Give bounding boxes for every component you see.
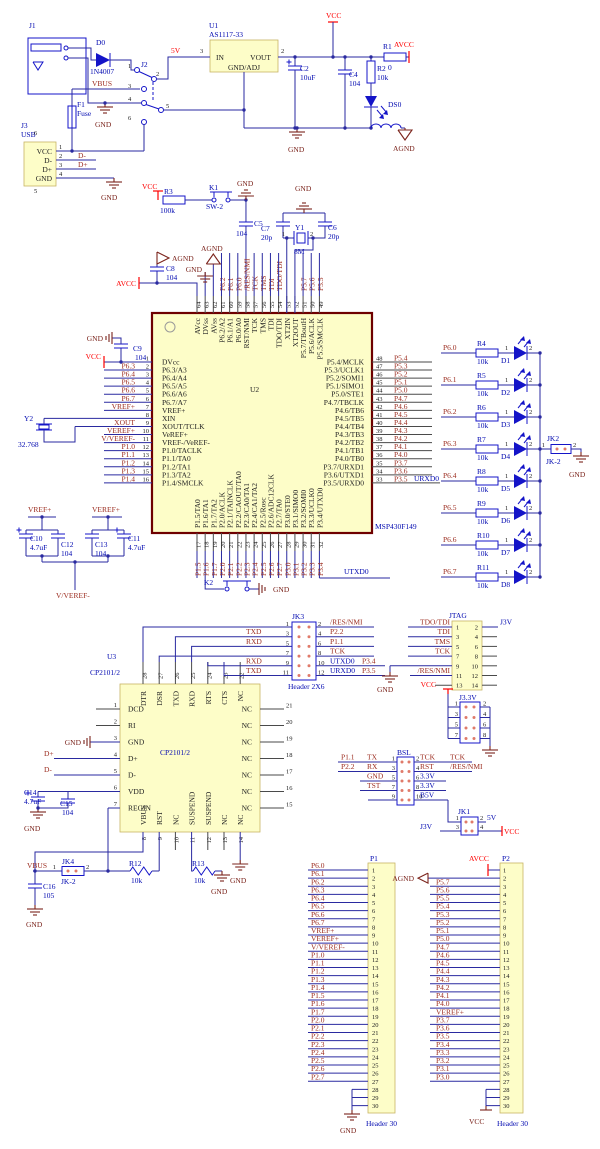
pin-number: 22: [236, 542, 243, 549]
net-label: D+: [42, 165, 52, 174]
net-label: Fuse: [77, 109, 92, 118]
net-label: VEREF+: [92, 505, 120, 514]
net-label: K1: [209, 183, 218, 192]
pin-name: NC: [236, 691, 245, 701]
net-label: C12: [61, 540, 74, 549]
pin-number: 31: [310, 542, 317, 549]
pin-number: 2: [529, 505, 532, 512]
pin-number: 27: [158, 672, 165, 679]
designator: D8: [501, 580, 510, 589]
pin-number: 51: [302, 302, 309, 309]
net-label: C4: [349, 70, 358, 79]
net-label: TMS: [435, 637, 450, 646]
switch-contact: [142, 101, 147, 106]
pin-number: 15: [143, 468, 150, 475]
value: 10k: [477, 421, 489, 430]
pin-number: 34: [376, 468, 383, 475]
pin-number: 54: [277, 301, 284, 308]
pin-number: 11: [283, 670, 289, 677]
net-label: GND: [237, 179, 254, 188]
pin-pad: [298, 674, 301, 677]
net-label: JK2: [547, 434, 559, 443]
net-label: D+: [44, 749, 54, 758]
pin-number: 42: [376, 404, 383, 411]
resistor-icon: [193, 867, 215, 875]
pin-number: 27: [277, 541, 284, 548]
pin-number: 39: [376, 428, 383, 435]
pin-pad: [465, 716, 468, 719]
net-label: 1N4007: [90, 67, 114, 76]
pin-number: 62: [212, 302, 219, 309]
pin-number: 13: [503, 965, 510, 972]
net-label: 2: [59, 153, 62, 160]
pin-number: 2: [480, 815, 483, 822]
net-label: P6.2: [443, 407, 457, 416]
pin-name: NC: [242, 705, 252, 714]
pin-name: P3.5/URXD0: [323, 478, 364, 487]
pin-number: 2: [372, 876, 375, 883]
designator: D3: [501, 420, 510, 429]
pin-name: RXD: [188, 690, 197, 706]
net-label: C13: [95, 540, 108, 549]
led-icon: [514, 570, 527, 584]
pin-number: 20: [220, 542, 227, 549]
pin-pad: [298, 645, 301, 648]
junction-dot: [369, 55, 372, 58]
net-label: URXD0: [330, 666, 355, 675]
button-contact: [225, 587, 229, 591]
pin-number: 11: [143, 436, 149, 443]
net-label: 4.7uF: [128, 543, 145, 552]
net-label: VCC: [421, 680, 436, 689]
pin-number: 24: [253, 541, 260, 548]
pin-number: 1: [505, 473, 508, 480]
pin-pad: [401, 770, 404, 773]
net-label: RXD: [246, 637, 262, 646]
pin-number: 59: [236, 302, 243, 309]
net-label: VCC: [142, 182, 157, 191]
net-label: U2: [250, 385, 259, 394]
junction-dot: [40, 554, 43, 557]
pin-number: 19: [372, 1014, 379, 1021]
value: 10k: [477, 549, 489, 558]
schematic-canvas: 64AVcc63DVss62AVss61P6.2P6.2/A260P6.1P6.…: [0, 0, 600, 1149]
pin-number: 2: [529, 377, 532, 384]
pin-number: 6: [114, 785, 118, 792]
net-label: GND: [211, 887, 228, 896]
net-label: C8: [166, 264, 175, 273]
pin-number: 11: [190, 837, 197, 843]
net-label: 5: [34, 188, 37, 195]
designator: R11: [477, 563, 489, 572]
pin-number: 12: [143, 444, 150, 451]
inductor-icon: [371, 124, 401, 128]
pin-pad: [308, 635, 311, 638]
pin-name: P3.4/UTXD0: [315, 488, 324, 528]
designator: R5: [477, 371, 486, 380]
pin-number: 29: [293, 542, 300, 549]
pin-number: 30: [503, 1103, 510, 1110]
net-label: JK3: [292, 612, 304, 621]
wire: [157, 283, 197, 296]
pin-pad: [308, 626, 311, 629]
wire: [175, 637, 292, 662]
pin-number: 33: [376, 476, 383, 483]
value: 10k: [477, 485, 489, 494]
net-label: J2: [141, 60, 148, 69]
pin-name: P1.4/SMCLK: [162, 478, 204, 487]
net-label: C11: [128, 534, 140, 543]
pin-number: 24: [206, 672, 213, 679]
net-label: B5V: [420, 791, 435, 800]
designator: R7: [477, 435, 486, 444]
pin-pad: [471, 821, 474, 824]
pin-number: 21: [286, 703, 293, 710]
pin-number: 5: [372, 900, 375, 907]
net-label: P2.7: [311, 1072, 325, 1081]
pin-pad: [298, 664, 301, 667]
pin-number: 3: [372, 884, 375, 891]
net-label: 104: [95, 549, 107, 558]
pin-number: 5: [503, 900, 506, 907]
pin-name: NC: [242, 787, 252, 796]
net-label: GND: [95, 120, 112, 129]
pin-number: 8: [483, 732, 486, 739]
net-label: TST: [367, 781, 381, 790]
pin-name: DCD: [128, 705, 144, 714]
jk3-header: [292, 622, 316, 680]
net-label: 4: [59, 171, 63, 178]
designator: D6: [501, 516, 510, 525]
schematic-page: 64AVcc63DVss62AVss61P6.2P6.2/A260P6.1P6.…: [0, 0, 600, 1149]
junction-dot: [40, 515, 43, 518]
net-label: TCK: [330, 647, 346, 656]
net-label: GND: [26, 920, 43, 929]
net-label: AGND: [393, 144, 415, 153]
crystal-icon: [39, 425, 49, 429]
net-label: D-: [44, 156, 52, 165]
pin-number: 2: [475, 625, 478, 632]
pin-name: NC: [242, 771, 252, 780]
resistor-icon: [476, 445, 498, 453]
net-label: AVCC: [116, 279, 136, 288]
net-label: GND: [340, 1126, 357, 1135]
pin-number: 17: [503, 998, 510, 1005]
pin-pad: [465, 727, 468, 730]
net-label: TXD: [246, 627, 262, 636]
designator: R10: [477, 531, 490, 540]
net-label: P1.1: [341, 753, 355, 762]
net-label: URXD0: [414, 474, 439, 483]
pin-number: 14: [238, 836, 245, 843]
pin-number: 18: [204, 542, 211, 549]
pin-number: 13: [222, 837, 229, 844]
net-label: SW-2: [206, 202, 223, 211]
net-label: R2: [377, 64, 386, 73]
designator: R9: [477, 499, 486, 508]
pin-number: 58: [244, 302, 251, 309]
net-label: Y2: [24, 414, 33, 423]
pin-number: 17: [286, 769, 293, 776]
pin-number: 49: [318, 302, 325, 309]
net-label: J3V: [420, 822, 433, 831]
net-label: 104: [236, 229, 248, 238]
net-label: 20p: [261, 233, 273, 242]
net-label: GND: [87, 334, 104, 343]
net-label: R1: [383, 42, 392, 51]
pin-number: 20: [286, 719, 293, 726]
pin-number: 13: [372, 965, 379, 972]
net-label: RXD: [246, 656, 262, 665]
pin-number: 1: [456, 815, 459, 822]
net-label: VCC: [86, 352, 101, 361]
net-label: J3V: [500, 618, 513, 627]
resistor-icon: [476, 573, 498, 581]
net-label: Header 30: [497, 1119, 528, 1128]
value: 10k: [477, 453, 489, 462]
net-label: U1: [209, 21, 218, 30]
net-label: TDO/TDI: [275, 261, 284, 291]
net-label: VOUT: [250, 53, 271, 62]
pin-number: 44: [376, 388, 383, 395]
net-label: J1: [29, 21, 36, 30]
pin-number: 5: [286, 640, 289, 647]
pin-pad: [401, 789, 404, 792]
pin-number: 16: [503, 989, 510, 996]
junction-dot: [103, 101, 106, 104]
pin-number: 3: [392, 765, 395, 772]
net-label: P6.6: [443, 535, 457, 544]
pin-number: 1: [505, 441, 508, 448]
net-label: 2: [86, 864, 89, 871]
pin-number: 30: [302, 542, 309, 549]
junction-dot: [119, 360, 122, 363]
pin-number: 26: [269, 541, 276, 548]
junction-dot: [106, 869, 109, 872]
pin-number: 23: [372, 1046, 379, 1053]
pin-number: 15: [286, 802, 293, 809]
pin-number: 46: [376, 372, 383, 379]
pin-number: 11: [503, 949, 509, 956]
junction-dot: [70, 149, 73, 152]
pin-pad: [471, 830, 474, 833]
wire: [192, 646, 292, 662]
pin-number: 3: [456, 824, 459, 831]
net-label: 3: [59, 162, 62, 169]
net-label: 6: [128, 115, 132, 122]
pin-number: 35: [376, 460, 383, 467]
pin-pad: [465, 830, 468, 833]
pin-number: 2: [529, 345, 532, 352]
net-label: TCK: [420, 753, 436, 762]
net-label: JK4: [62, 857, 74, 866]
diode-icon: [96, 53, 110, 67]
pin-number: 18: [503, 1006, 510, 1013]
pin-name: DSR: [155, 691, 164, 706]
net-label: P6.3: [443, 439, 457, 448]
pin-number: 48: [376, 356, 383, 363]
pin-number: 47: [376, 364, 383, 371]
pin-number: 45: [376, 380, 383, 387]
net-label: P2.2: [341, 762, 355, 771]
net-label: JTAG: [449, 611, 467, 620]
net-label: U3: [107, 652, 116, 661]
agnd-icon: [398, 130, 412, 140]
net-label: TCK: [435, 647, 451, 656]
net-label: IN: [216, 53, 224, 62]
pin-number: 27: [503, 1079, 510, 1086]
pin-name: VDD: [128, 787, 145, 796]
pin-name: RTS: [204, 691, 213, 704]
pin-number: 19: [286, 736, 293, 743]
net-label: P6.7: [443, 567, 457, 576]
pin-number: 1: [505, 409, 508, 416]
net-label: 20p: [328, 232, 340, 241]
net-label: GND: [367, 772, 384, 781]
pin-number: 28: [503, 1087, 510, 1094]
resistor-icon: [163, 196, 185, 204]
net-label: P6.5: [443, 503, 457, 512]
junction-dot: [343, 55, 346, 58]
net-label: C10: [30, 534, 43, 543]
pin-pad: [408, 770, 411, 773]
net-label: 1: [59, 144, 62, 151]
net-label: VCC: [326, 11, 341, 20]
pin-number: 8: [475, 654, 478, 661]
pin-number: 18: [286, 752, 293, 759]
net-label: GND: [273, 585, 290, 594]
pin-number: 2: [146, 364, 149, 371]
net-label: /RES/NMI: [450, 762, 483, 771]
pin-number: 36: [376, 452, 383, 459]
pin-number: 21: [372, 1030, 379, 1037]
designator: D2: [501, 388, 510, 397]
pin-number: 50: [310, 302, 317, 309]
led-icon: [514, 442, 527, 456]
pin-number: 16: [372, 989, 379, 996]
pin-number: 7: [114, 801, 118, 808]
pin-number: 32: [318, 542, 325, 549]
pin-number: 25: [190, 673, 197, 680]
jk2-jumper: [551, 445, 571, 454]
agnd-icon: [157, 252, 169, 264]
pin-number: 16: [143, 476, 150, 483]
net-label: CP2101/2: [160, 748, 190, 757]
pin-pad: [465, 706, 468, 709]
wire: [313, 226, 325, 238]
pin-pad: [298, 655, 301, 658]
pin-pad: [465, 821, 468, 824]
pin-pad: [473, 716, 476, 719]
pin-number: 64: [196, 301, 203, 308]
pin-number: 8: [372, 924, 375, 931]
pin-number: 10: [173, 837, 180, 844]
net-label: DS0: [388, 100, 402, 109]
pin-number: 25: [503, 1063, 510, 1070]
pin-number: 6: [146, 396, 150, 403]
net-label: 3: [128, 83, 131, 90]
net-label: P1: [370, 854, 378, 863]
net-label: TCK: [450, 753, 466, 762]
net-label: P1.4: [121, 474, 135, 483]
net-label: AVCC: [469, 854, 489, 863]
net-label: C9: [133, 344, 142, 353]
net-label: 104: [61, 549, 73, 558]
pin-number: 9: [503, 933, 506, 940]
pin-number: 3: [146, 372, 149, 379]
pin-number: 4: [146, 380, 150, 387]
net-label: 6: [34, 130, 38, 137]
led-icon: [514, 474, 527, 488]
pin-name: GND: [128, 738, 145, 747]
net-label: UTXD0: [330, 656, 355, 665]
net-label: P2: [502, 854, 510, 863]
net-label: 4.7uF: [30, 543, 47, 552]
pin-pad: [298, 635, 301, 638]
net-label: C7: [261, 224, 270, 233]
pin-name: SUSPEND: [188, 791, 197, 825]
pin-number: 3: [114, 735, 117, 742]
pin-pad: [408, 780, 411, 783]
net-label: 1: [282, 231, 285, 238]
pin-number: 43: [376, 396, 383, 403]
pin-number: 11: [456, 673, 462, 680]
pin-pad: [556, 448, 559, 451]
net-label: UTXD0: [344, 567, 369, 576]
net-label: C2: [300, 64, 309, 73]
led-icon: [514, 410, 527, 424]
pin-number: 2: [529, 537, 532, 544]
net-label: /RES/NMI: [330, 618, 363, 627]
pin-pad: [401, 761, 404, 764]
pin-number: 23: [503, 1046, 510, 1053]
value: 10k: [477, 357, 489, 366]
pin-number: 19: [503, 1014, 510, 1021]
switch-contact: [142, 87, 147, 92]
j1-tip-icon: [33, 62, 43, 70]
pin-number: 3: [456, 634, 459, 641]
net-label: RST: [420, 762, 434, 771]
wire: [571, 449, 581, 452]
net-label: V/VEREF-: [56, 591, 90, 600]
net-label: F1: [77, 100, 85, 109]
pin-number: 1: [503, 868, 506, 875]
net-label: VCC: [37, 147, 52, 156]
pin-number: 4: [114, 752, 118, 759]
pin-name: TXD: [171, 690, 180, 706]
switch-contact: [135, 68, 140, 73]
net-label: 4.7uF: [24, 797, 41, 806]
net-label: TDI: [438, 627, 451, 636]
net-label: /RES/NMI: [417, 666, 450, 675]
pin-number: 8: [146, 412, 149, 419]
net-label: C16: [43, 882, 56, 891]
pin-number: 9: [392, 794, 395, 801]
net-label: 1: [128, 63, 131, 70]
net-label: GND: [288, 145, 305, 154]
net-label: TX: [367, 753, 378, 762]
net-label: 5: [166, 103, 169, 110]
led-icon: [514, 506, 527, 520]
pin-number: 12: [372, 957, 379, 964]
net-label: AGND: [172, 254, 194, 263]
net-label: P5.5: [316, 277, 325, 291]
pin-number: 2: [529, 473, 532, 480]
pin-name: NC: [220, 815, 229, 825]
pin-number: 28: [285, 542, 292, 549]
net-label: P6.0: [443, 343, 457, 352]
pin-number: 28: [142, 673, 149, 680]
